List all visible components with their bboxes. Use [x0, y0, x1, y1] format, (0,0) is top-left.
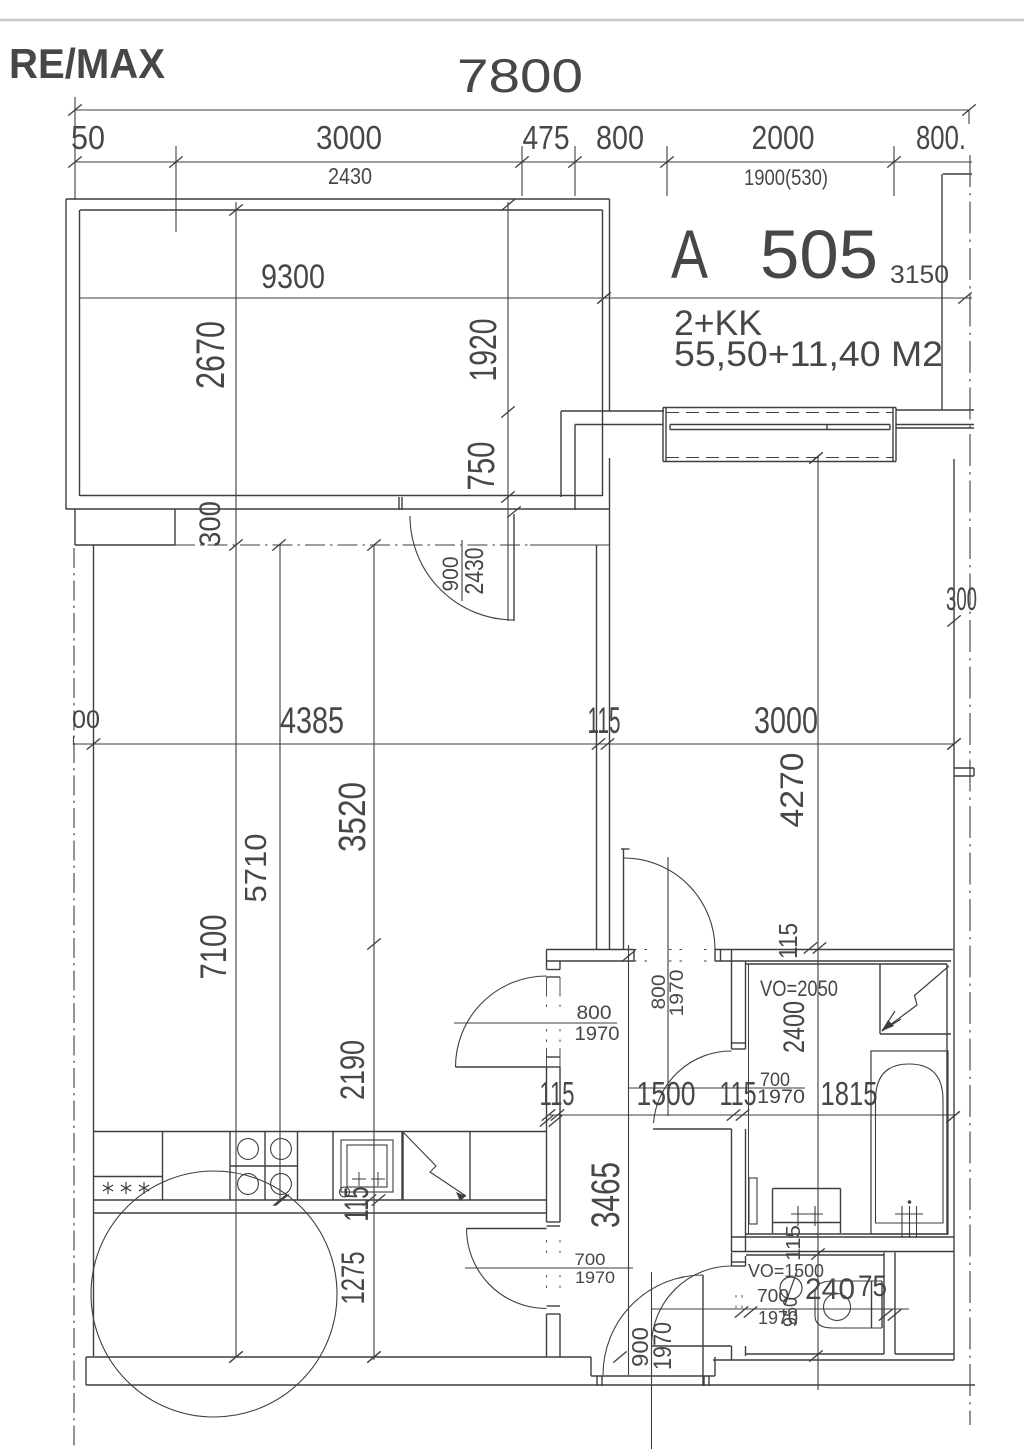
svg-text:55,50+11,40 M2: 55,50+11,40 M2	[674, 335, 943, 374]
svg-text:800: 800	[577, 1003, 612, 1024]
svg-text:5710: 5710	[238, 834, 273, 903]
svg-text:700: 700	[575, 1250, 606, 1269]
svg-text:3520: 3520	[332, 782, 374, 852]
svg-text:115: 115	[720, 1075, 757, 1112]
svg-text:800: 800	[596, 119, 644, 156]
svg-text:115: 115	[588, 700, 621, 741]
svg-text:9300: 9300	[261, 258, 325, 296]
svg-text:50: 50	[71, 119, 105, 156]
svg-text:75: 75	[858, 1270, 887, 1303]
svg-text:505: 505	[760, 216, 878, 293]
svg-text:1500: 1500	[637, 1075, 696, 1112]
svg-text:950: 950	[780, 1297, 802, 1327]
svg-text:1815: 1815	[821, 1075, 878, 1112]
svg-text:300: 300	[946, 581, 977, 617]
svg-text:2000: 2000	[752, 119, 815, 156]
svg-text:4385: 4385	[280, 700, 344, 741]
svg-text:RE/MAX: RE/MAX	[9, 40, 165, 87]
svg-text:7800: 7800	[457, 49, 583, 102]
svg-text:1970: 1970	[575, 1268, 615, 1287]
svg-text:115: 115	[773, 923, 803, 959]
svg-text:A: A	[671, 216, 708, 293]
svg-text:2190: 2190	[334, 1040, 372, 1100]
svg-text:3465: 3465	[584, 1162, 628, 1228]
svg-text:240: 240	[805, 1273, 855, 1306]
svg-text:3000: 3000	[754, 700, 818, 741]
svg-text:7100: 7100	[193, 915, 234, 980]
svg-text:750: 750	[461, 442, 503, 491]
svg-text:475: 475	[523, 119, 570, 156]
svg-text:1970: 1970	[667, 970, 688, 1017]
svg-text:800.: 800.	[916, 119, 966, 156]
svg-text:VO=2050: VO=2050	[760, 976, 838, 1001]
svg-text:3150: 3150	[890, 261, 949, 289]
svg-text:2430: 2430	[459, 548, 489, 595]
svg-text:2400: 2400	[778, 1001, 811, 1053]
svg-text:1275: 1275	[335, 1252, 371, 1305]
svg-text:2430: 2430	[328, 163, 372, 189]
svg-text:00: 00	[72, 706, 100, 734]
svg-text:300: 300	[194, 501, 227, 547]
svg-text:115: 115	[540, 1075, 575, 1112]
svg-text:4270: 4270	[774, 753, 810, 828]
svg-text:1970: 1970	[575, 1024, 620, 1045]
svg-text:2670: 2670	[189, 321, 233, 389]
svg-text:3000: 3000	[316, 119, 382, 156]
svg-text:1970: 1970	[757, 1087, 805, 1108]
svg-text:1970: 1970	[649, 1322, 677, 1370]
svg-text:1920: 1920	[463, 319, 505, 382]
svg-text:1900(530): 1900(530)	[744, 165, 828, 190]
